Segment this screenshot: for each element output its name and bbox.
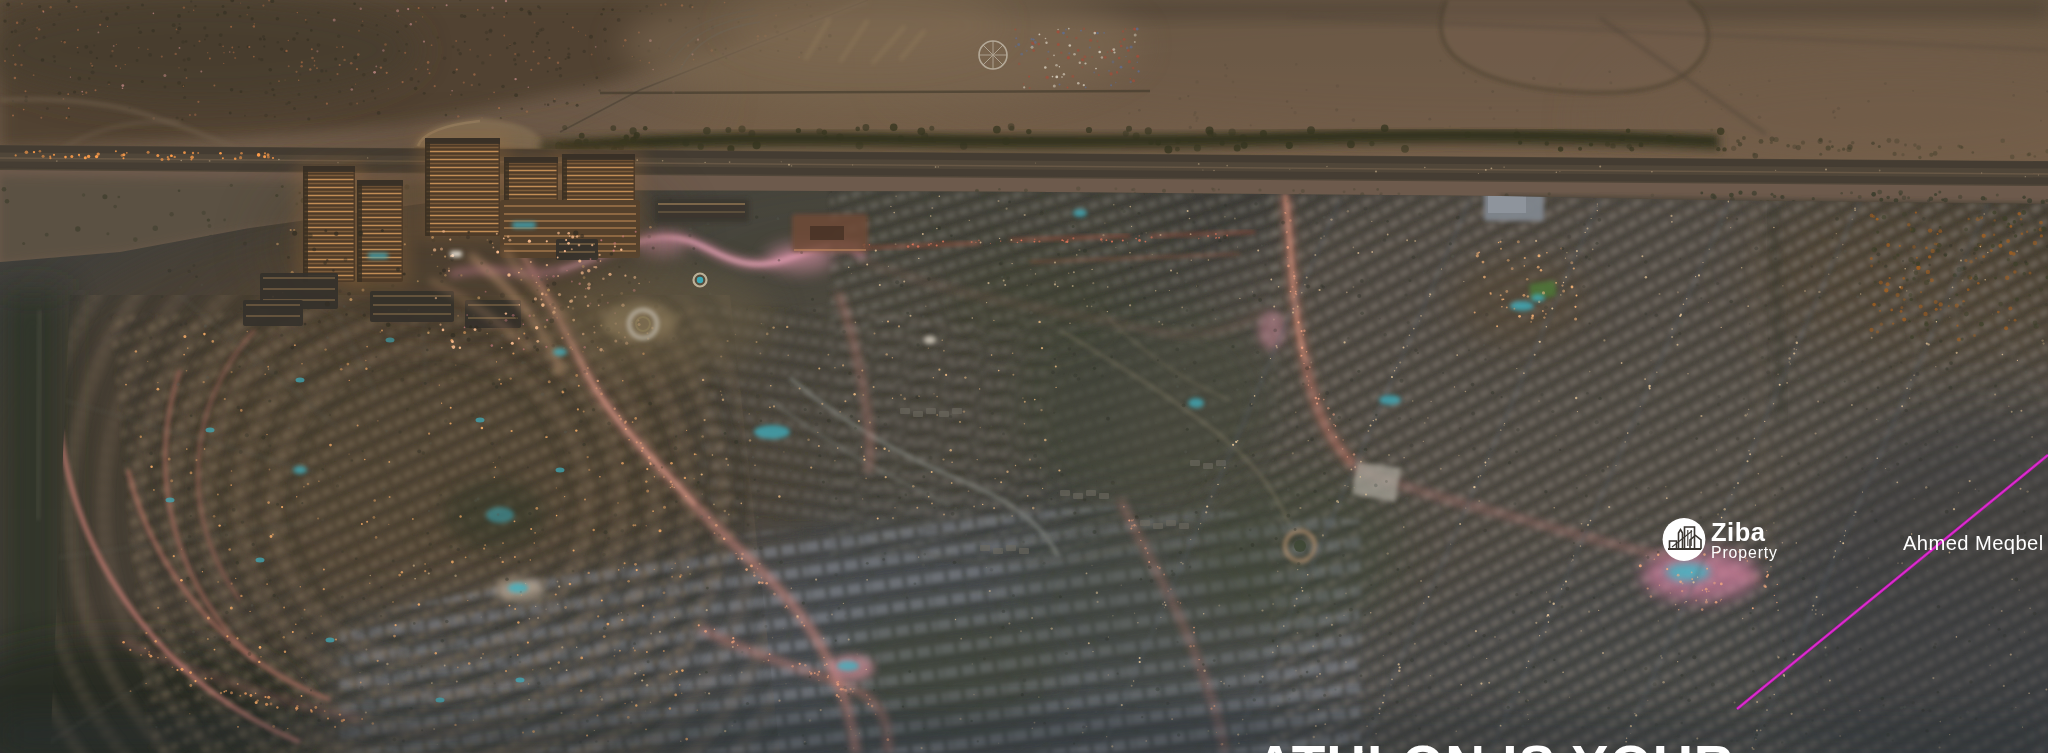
svg-text:Property: Property — [1711, 544, 1778, 561]
svg-text:ATHLON IS YOUR: ATHLON IS YOUR — [1255, 734, 1735, 753]
svg-text:Ziba: Ziba — [1711, 518, 1766, 546]
svg-text:Ahmed Meqbel: Ahmed Meqbel — [1903, 532, 2044, 554]
